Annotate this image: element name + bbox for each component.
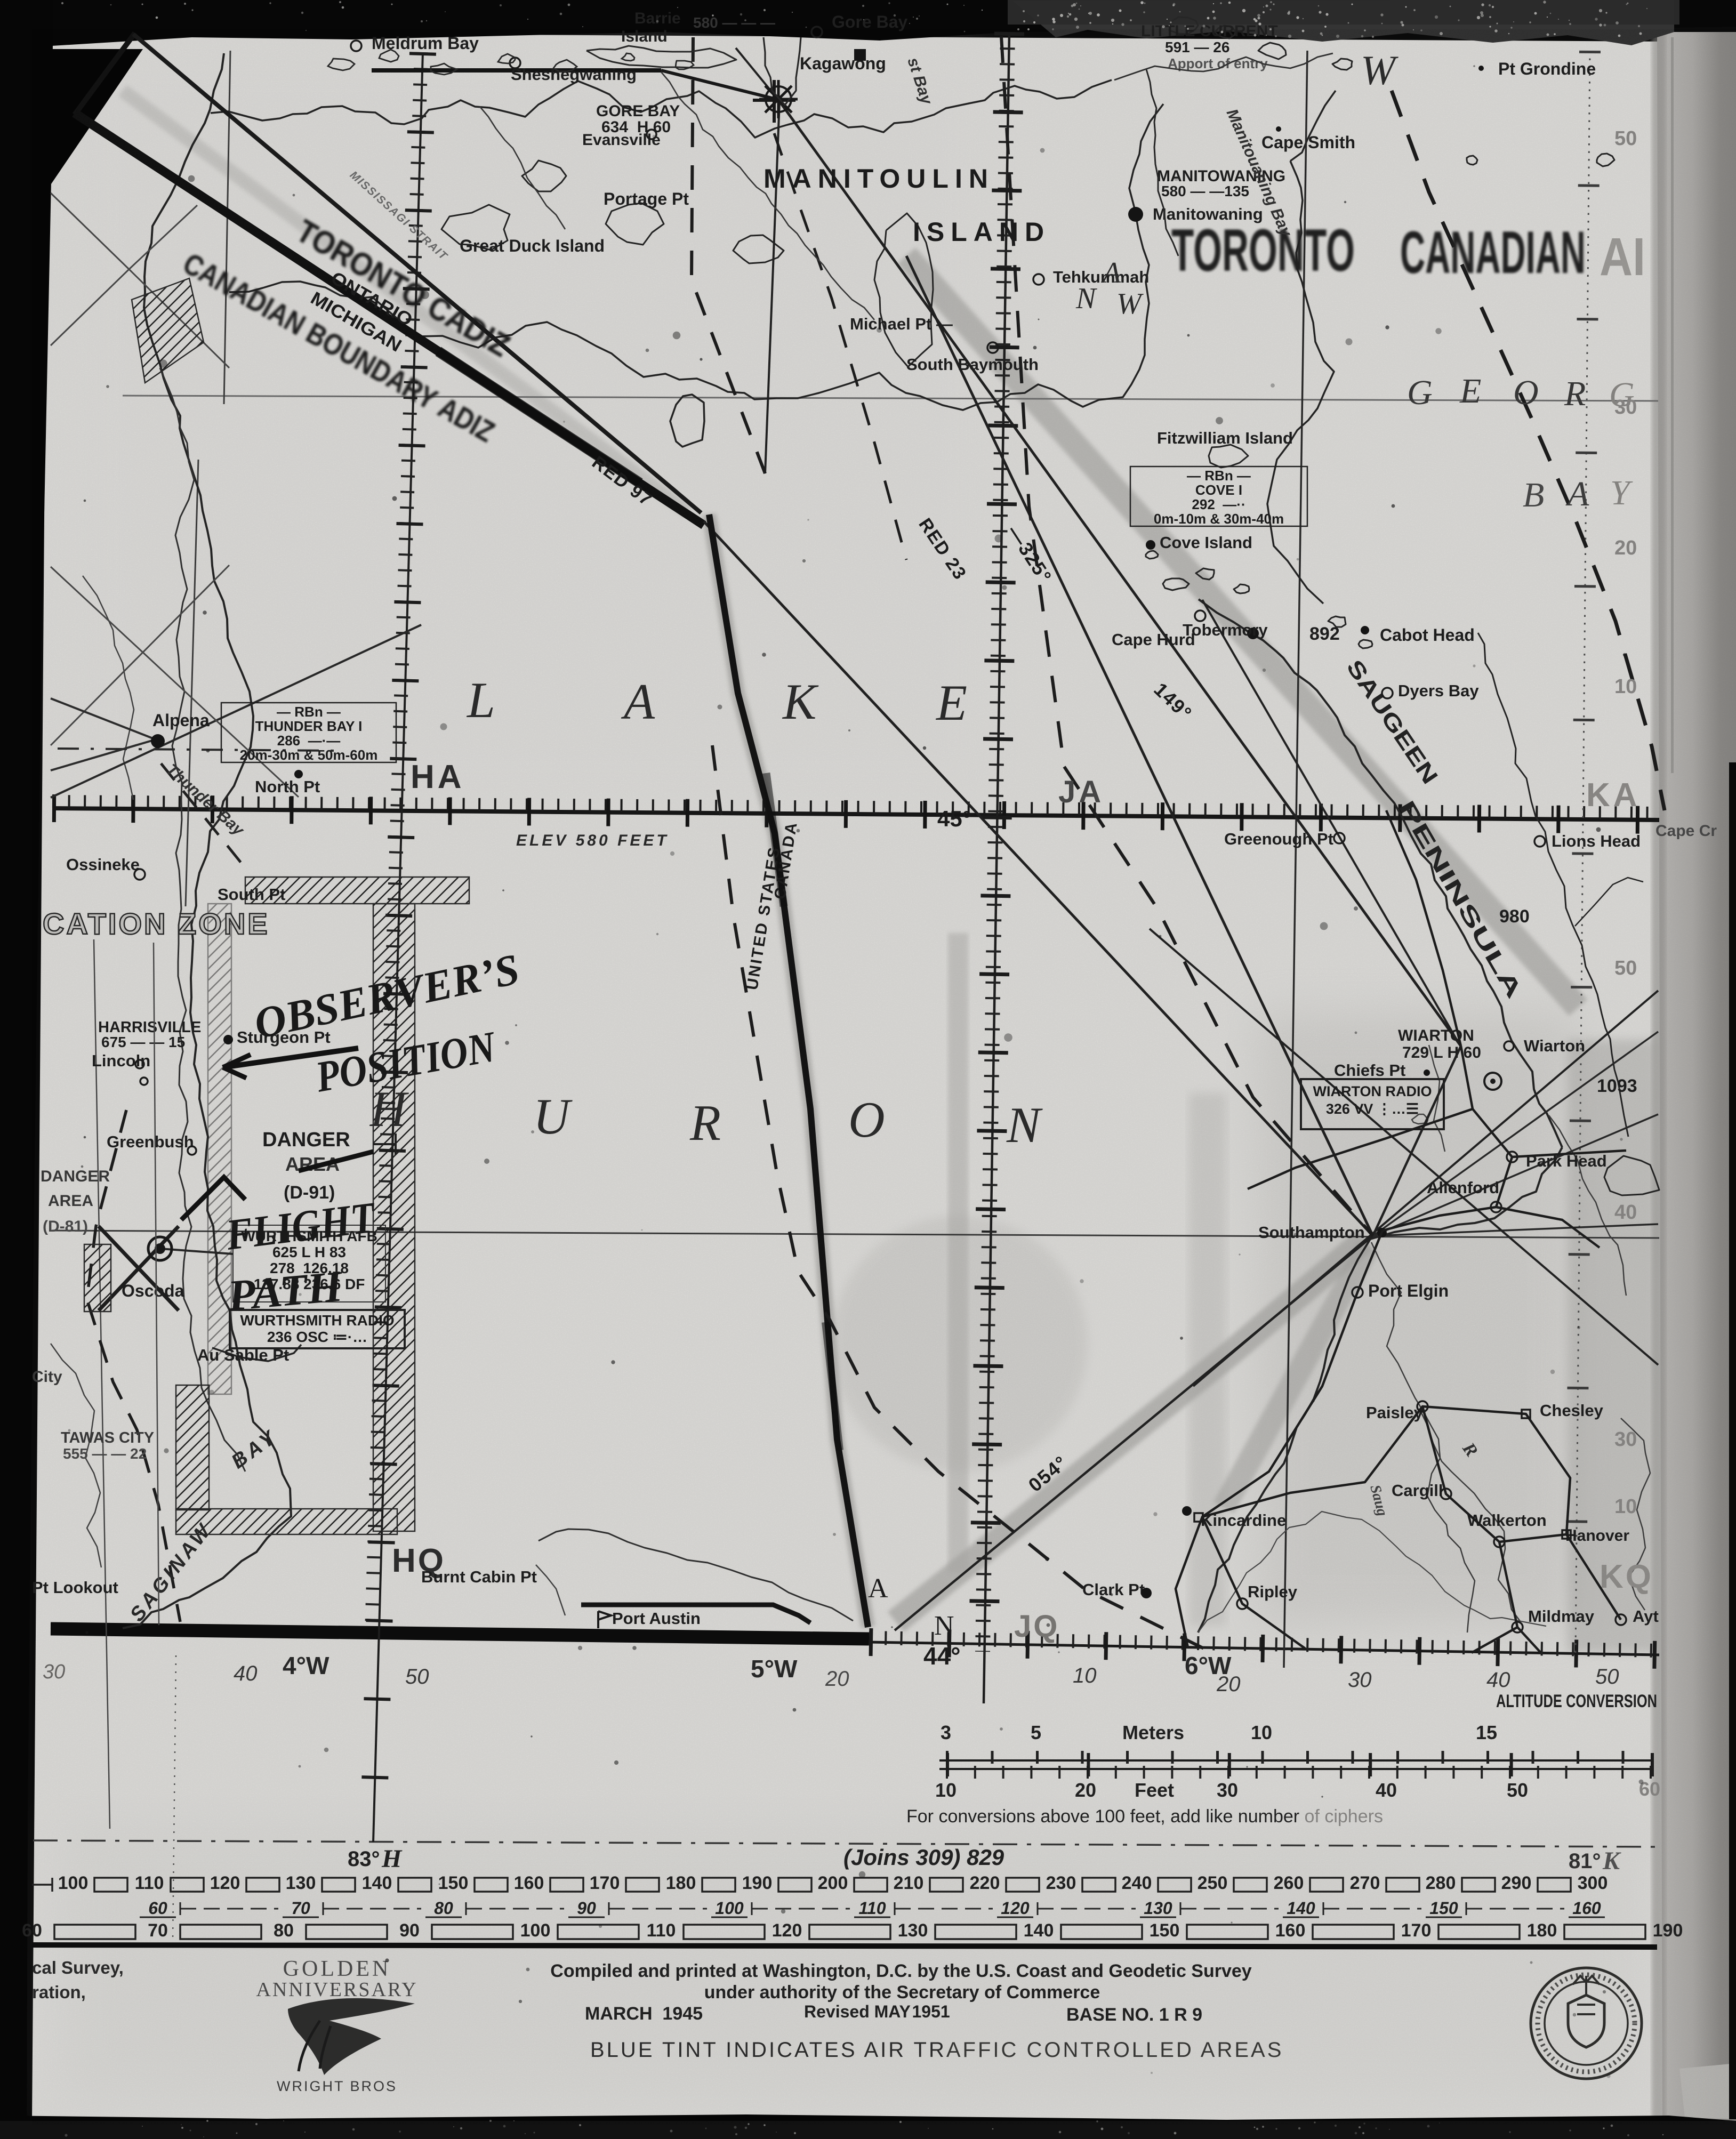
svg-text:580 — — —: 580 — — — bbox=[693, 14, 775, 31]
svg-text:Gore Bay: Gore Bay bbox=[832, 12, 907, 31]
svg-text:Bаrrie: Bаrrie bbox=[634, 10, 681, 27]
